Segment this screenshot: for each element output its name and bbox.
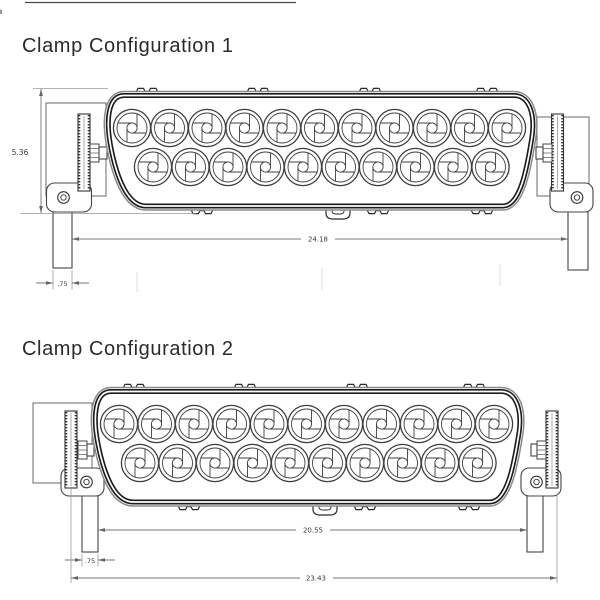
technical-drawing-page: Clamp Configuration 1 Clamp Configuratio… [0, 0, 600, 600]
dim-strap-75-config1: .75 [36, 270, 89, 290]
light-bar-drawing-svg: 5.36 24.18 .75 [0, 0, 600, 600]
dim-label-23-43: 23.43 [306, 575, 326, 583]
clamp-config-2-drawing: 20.55 .75 23.43 [33, 384, 561, 583]
light-bar-config1 [108, 88, 532, 219]
dim-span-24-18: 24.18 [72, 236, 568, 244]
dim-label-75-config1: .75 [57, 280, 67, 288]
clamp-config-1-drawing: 5.36 24.18 .75 [12, 88, 593, 292]
dim-label-5-36: 5.36 [12, 148, 29, 157]
light-bar-config2 [95, 384, 519, 515]
config2-right-clamp [521, 411, 561, 552]
dim-span-20-55: 20.55 [98, 527, 527, 535]
dim-label-75-config2: .75 [85, 557, 95, 565]
dim-label-24-18: 24.18 [308, 236, 328, 244]
dim-strap-75-config2: .75 [65, 554, 115, 567]
dim-label-20-55: 20.55 [303, 527, 323, 535]
